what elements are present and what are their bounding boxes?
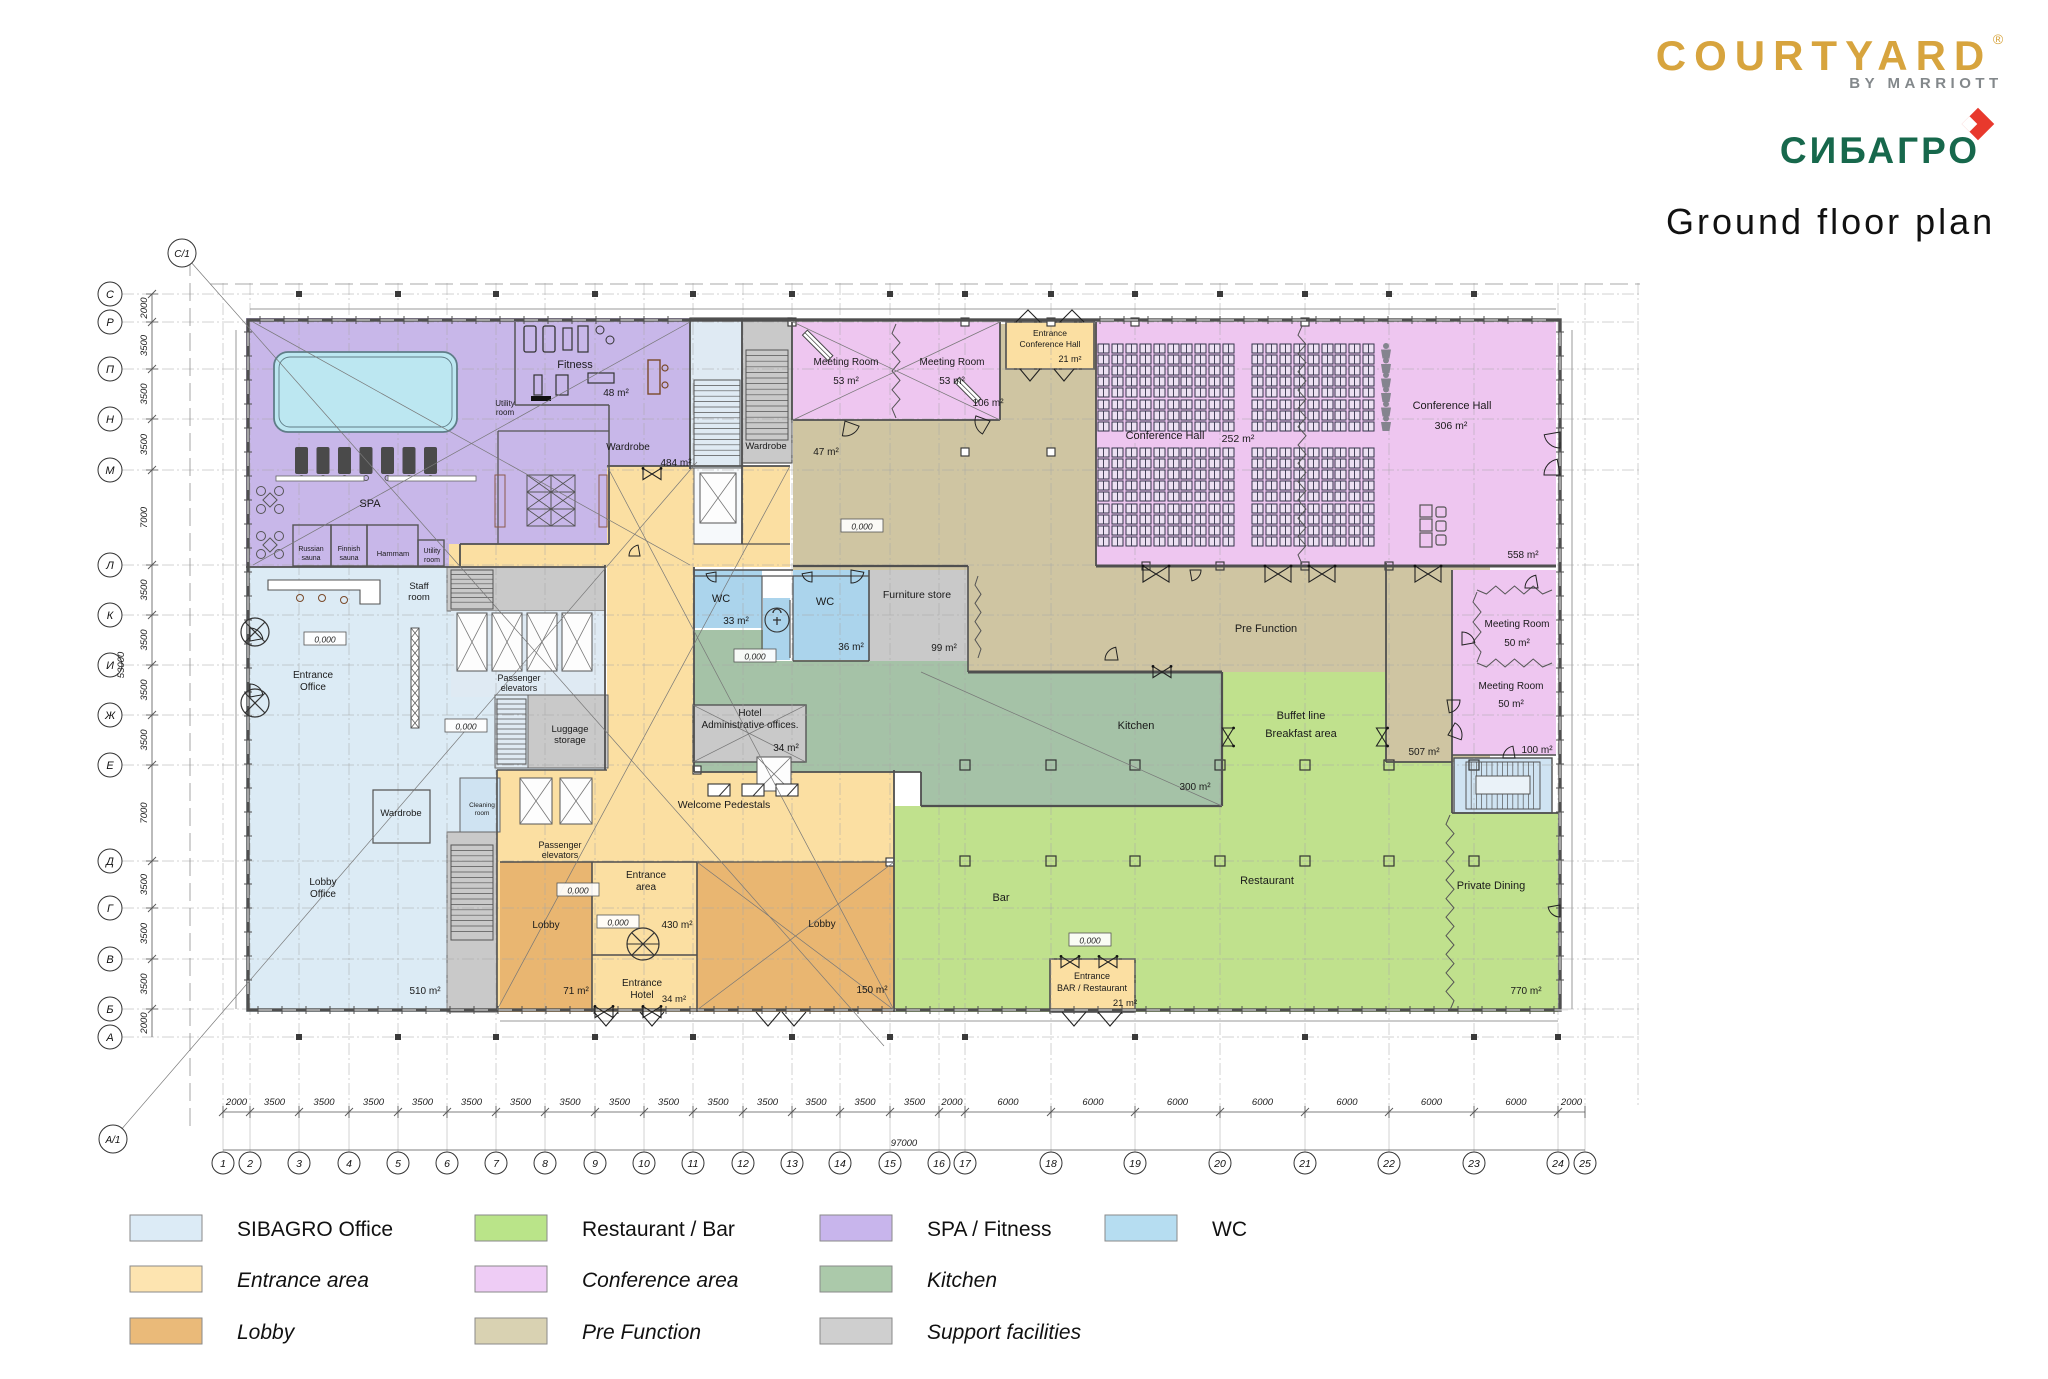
svg-text:Г: Г bbox=[107, 903, 114, 915]
svg-text:Л: Л bbox=[105, 560, 114, 572]
svg-text:6000: 6000 bbox=[1421, 1097, 1443, 1108]
svg-text:50 m²: 50 m² bbox=[1498, 699, 1524, 710]
svg-text:3500: 3500 bbox=[139, 629, 150, 651]
svg-text:3500: 3500 bbox=[510, 1097, 532, 1108]
svg-text:510 m²: 510 m² bbox=[409, 986, 441, 997]
svg-text:2000: 2000 bbox=[139, 297, 150, 320]
svg-text:0,000: 0,000 bbox=[607, 918, 629, 928]
svg-text:Entrance: Entrance bbox=[626, 870, 666, 881]
svg-text:BY MARRIOTT: BY MARRIOTT bbox=[1849, 75, 2002, 92]
svg-text:0,000: 0,000 bbox=[455, 722, 477, 732]
svg-text:Wardrobe: Wardrobe bbox=[380, 808, 421, 819]
svg-text:3500: 3500 bbox=[805, 1097, 827, 1108]
svg-text:Ж: Ж bbox=[104, 710, 116, 722]
svg-text:3500: 3500 bbox=[139, 334, 150, 356]
svg-text:Private Dining: Private Dining bbox=[1457, 880, 1525, 892]
svg-text:22: 22 bbox=[1382, 1158, 1395, 1170]
svg-text:Р: Р bbox=[106, 317, 114, 329]
svg-text:21 m²: 21 m² bbox=[1113, 998, 1137, 1009]
svg-text:21 m²: 21 m² bbox=[1058, 354, 1081, 364]
svg-text:3500: 3500 bbox=[658, 1097, 680, 1108]
svg-text:Kitchen: Kitchen bbox=[1118, 720, 1155, 732]
svg-text:Д: Д bbox=[104, 856, 114, 868]
svg-text:3500: 3500 bbox=[904, 1097, 926, 1108]
svg-text:Meeting Room: Meeting Room bbox=[1478, 681, 1543, 692]
svg-text:430 m²: 430 m² bbox=[661, 920, 693, 931]
svg-text:53 m²: 53 m² bbox=[833, 376, 859, 387]
svg-text:SPA / Fitness: SPA / Fitness bbox=[927, 1218, 1052, 1241]
svg-text:Hammam: Hammam bbox=[377, 549, 410, 558]
svg-text:Lobby: Lobby bbox=[237, 1321, 296, 1344]
svg-text:Fitness: Fitness bbox=[557, 359, 593, 371]
svg-text:Conference Hall: Conference Hall bbox=[1126, 430, 1205, 442]
svg-text:room: room bbox=[496, 408, 515, 417]
svg-text:36 m²: 36 m² bbox=[838, 642, 864, 653]
svg-text:WC: WC bbox=[1212, 1218, 1247, 1241]
svg-text:В: В bbox=[106, 954, 113, 966]
svg-text:СИБАГРО: СИБАГРО bbox=[1780, 130, 1980, 171]
svg-text:100 m²: 100 m² bbox=[1521, 745, 1553, 756]
svg-text:Luggage: Luggage bbox=[552, 724, 589, 735]
svg-text:Utility: Utility bbox=[495, 399, 515, 408]
svg-text:Office: Office bbox=[300, 682, 326, 693]
svg-text:0,000: 0,000 bbox=[851, 522, 873, 532]
svg-text:0,000: 0,000 bbox=[744, 652, 766, 662]
svg-text:Conference area: Conference area bbox=[582, 1269, 738, 1292]
svg-text:3500: 3500 bbox=[412, 1097, 434, 1108]
svg-text:3500: 3500 bbox=[757, 1097, 779, 1108]
svg-text:П: П bbox=[106, 364, 114, 376]
svg-text:1: 1 bbox=[220, 1158, 226, 1170]
svg-text:6000: 6000 bbox=[997, 1097, 1019, 1108]
svg-text:6000: 6000 bbox=[1167, 1097, 1189, 1108]
svg-text:Lobby: Lobby bbox=[309, 877, 336, 888]
svg-text:558 m²: 558 m² bbox=[1507, 550, 1539, 561]
svg-text:2: 2 bbox=[246, 1158, 253, 1170]
svg-text:Conference Hall: Conference Hall bbox=[1020, 339, 1081, 349]
svg-text:6000: 6000 bbox=[1336, 1097, 1358, 1108]
svg-text:Wardrobe: Wardrobe bbox=[606, 442, 650, 453]
svg-text:47 m²: 47 m² bbox=[813, 447, 839, 458]
svg-text:53000: 53000 bbox=[116, 651, 127, 678]
svg-text:Staff: Staff bbox=[409, 581, 429, 592]
svg-text:11: 11 bbox=[688, 1158, 699, 1170]
svg-text:3500: 3500 bbox=[139, 579, 150, 601]
svg-text:3500: 3500 bbox=[363, 1097, 385, 1108]
svg-text:106 m²: 106 m² bbox=[972, 398, 1004, 409]
svg-text:WC: WC bbox=[712, 593, 730, 605]
svg-text:Breakfast area: Breakfast area bbox=[1265, 728, 1337, 740]
svg-text:Passenger: Passenger bbox=[497, 673, 540, 683]
svg-text:16: 16 bbox=[933, 1158, 945, 1170]
svg-text:Б: Б bbox=[106, 1004, 113, 1016]
svg-text:Lobby: Lobby bbox=[808, 919, 835, 930]
svg-text:Passenger: Passenger bbox=[538, 840, 581, 850]
svg-text:Cleaning: Cleaning bbox=[469, 802, 495, 809]
svg-text:Hotel: Hotel bbox=[738, 708, 761, 719]
svg-text:3500: 3500 bbox=[264, 1097, 286, 1108]
svg-text:14: 14 bbox=[834, 1158, 846, 1170]
svg-text:8: 8 bbox=[542, 1158, 548, 1170]
svg-text:Kitchen: Kitchen bbox=[927, 1269, 997, 1292]
svg-text:storage: storage bbox=[554, 735, 586, 746]
svg-text:3500: 3500 bbox=[559, 1097, 581, 1108]
svg-text:3500: 3500 bbox=[461, 1097, 483, 1108]
svg-text:3500: 3500 bbox=[707, 1097, 729, 1108]
svg-text:6000: 6000 bbox=[1082, 1097, 1104, 1108]
svg-text:Е: Е bbox=[106, 760, 114, 772]
svg-text:18: 18 bbox=[1045, 1158, 1057, 1170]
svg-text:20: 20 bbox=[1213, 1158, 1226, 1170]
svg-text:19: 19 bbox=[1129, 1158, 1141, 1170]
svg-text:5: 5 bbox=[395, 1158, 401, 1170]
svg-text:А: А bbox=[105, 1032, 113, 1044]
svg-text:34 m²: 34 m² bbox=[773, 743, 799, 754]
svg-text:Welcome Pedestals: Welcome Pedestals bbox=[678, 799, 771, 811]
svg-text:Pre Function: Pre Function bbox=[1235, 623, 1297, 635]
svg-text:71 m²: 71 m² bbox=[563, 986, 589, 997]
svg-text:6000: 6000 bbox=[1505, 1097, 1527, 1108]
svg-text:room: room bbox=[408, 592, 430, 603]
svg-text:2000: 2000 bbox=[1560, 1097, 1583, 1108]
svg-text:6000: 6000 bbox=[1252, 1097, 1274, 1108]
svg-text:М: М bbox=[105, 465, 115, 477]
svg-text:3500: 3500 bbox=[139, 383, 150, 405]
svg-text:А/1: А/1 bbox=[104, 1135, 120, 1146]
svg-text:17: 17 bbox=[959, 1158, 972, 1170]
svg-text:6: 6 bbox=[444, 1158, 450, 1170]
svg-text:150 m²: 150 m² bbox=[856, 985, 888, 996]
svg-text:Buffet line: Buffet line bbox=[1277, 710, 1326, 722]
svg-text:Wardrobe: Wardrobe bbox=[745, 441, 786, 452]
svg-text:Russian: Russian bbox=[298, 546, 323, 553]
svg-text:12: 12 bbox=[737, 1158, 749, 1170]
svg-text:3: 3 bbox=[296, 1158, 302, 1170]
svg-text:sauna: sauna bbox=[339, 555, 358, 562]
svg-text:48 m²: 48 m² bbox=[603, 388, 629, 399]
svg-text:Administrative offices.: Administrative offices. bbox=[701, 720, 798, 731]
svg-text:С/1: С/1 bbox=[174, 249, 190, 260]
svg-text:К: К bbox=[107, 610, 114, 622]
svg-text:elevators: elevators bbox=[542, 850, 579, 860]
svg-text:3500: 3500 bbox=[139, 433, 150, 455]
svg-text:0,000: 0,000 bbox=[1079, 936, 1101, 946]
svg-text:97000: 97000 bbox=[891, 1138, 918, 1149]
svg-text:21: 21 bbox=[1298, 1158, 1311, 1170]
svg-text:15: 15 bbox=[884, 1158, 896, 1170]
svg-text:306 m²: 306 m² bbox=[1435, 420, 1468, 432]
svg-text:53 m²: 53 m² bbox=[939, 376, 965, 387]
svg-text:4: 4 bbox=[346, 1158, 352, 1170]
svg-text:33 m²: 33 m² bbox=[723, 616, 749, 627]
svg-text:elevators: elevators bbox=[501, 683, 538, 693]
svg-text:3500: 3500 bbox=[313, 1097, 335, 1108]
svg-text:room: room bbox=[475, 810, 490, 817]
svg-text:3500: 3500 bbox=[854, 1097, 876, 1108]
svg-text:3500: 3500 bbox=[139, 922, 150, 944]
svg-text:Entrance: Entrance bbox=[1033, 328, 1067, 338]
svg-text:COURTYARD: COURTYARD bbox=[1656, 32, 1992, 79]
svg-text:Meeting Room: Meeting Room bbox=[813, 357, 878, 368]
svg-text:Conference Hall: Conference Hall bbox=[1413, 400, 1492, 412]
svg-text:0,000: 0,000 bbox=[567, 886, 589, 896]
svg-text:10: 10 bbox=[638, 1158, 650, 1170]
svg-text:25: 25 bbox=[1578, 1158, 1591, 1170]
svg-text:room: room bbox=[424, 557, 440, 564]
svg-text:Pre Function: Pre Function bbox=[582, 1321, 701, 1344]
svg-text:13: 13 bbox=[786, 1158, 798, 1170]
svg-text:3500: 3500 bbox=[139, 729, 150, 751]
svg-text:Restaurant: Restaurant bbox=[1240, 875, 1294, 887]
svg-text:9: 9 bbox=[592, 1158, 598, 1170]
svg-text:Н: Н bbox=[106, 414, 114, 426]
svg-text:Meeting Room: Meeting Room bbox=[919, 357, 984, 368]
svg-text:Entrance: Entrance bbox=[1074, 971, 1110, 981]
svg-text:Entrance: Entrance bbox=[293, 670, 333, 681]
svg-text:Ground floor plan: Ground floor plan bbox=[1666, 201, 1995, 242]
svg-text:0,000: 0,000 bbox=[314, 635, 336, 645]
svg-text:99 m²: 99 m² bbox=[931, 643, 957, 654]
svg-text:2000: 2000 bbox=[139, 1012, 150, 1035]
svg-text:®: ® bbox=[1993, 31, 2004, 47]
svg-text:484 m²: 484 m² bbox=[660, 458, 692, 469]
svg-text:Finnish: Finnish bbox=[338, 546, 361, 553]
svg-text:Support facilities: Support facilities bbox=[927, 1321, 1082, 1344]
svg-text:Bar: Bar bbox=[992, 892, 1009, 904]
svg-text:50 m²: 50 m² bbox=[1504, 638, 1530, 649]
svg-text:770 m²: 770 m² bbox=[1510, 986, 1542, 997]
svg-text:Entrance: Entrance bbox=[622, 978, 662, 989]
svg-text:BAR / Restaurant: BAR / Restaurant bbox=[1057, 983, 1128, 993]
svg-text:Utility: Utility bbox=[423, 548, 441, 555]
svg-text:С: С bbox=[106, 289, 114, 301]
svg-text:3500: 3500 bbox=[139, 679, 150, 701]
svg-text:WC: WC bbox=[816, 596, 834, 608]
svg-text:Office: Office bbox=[310, 889, 336, 900]
svg-text:24: 24 bbox=[1551, 1158, 1564, 1170]
svg-text:Restaurant / Bar: Restaurant / Bar bbox=[582, 1218, 735, 1241]
svg-text:252 m²: 252 m² bbox=[1222, 433, 1255, 445]
svg-text:Furniture store: Furniture store bbox=[883, 589, 951, 601]
svg-text:300 m²: 300 m² bbox=[1179, 782, 1211, 793]
svg-text:3500: 3500 bbox=[139, 973, 150, 995]
svg-text:Entrance area: Entrance area bbox=[237, 1269, 369, 1292]
svg-text:3500: 3500 bbox=[609, 1097, 631, 1108]
svg-text:Hotel: Hotel bbox=[630, 990, 653, 1001]
svg-text:SPA: SPA bbox=[359, 498, 381, 510]
svg-text:Meeting Room: Meeting Room bbox=[1484, 619, 1549, 630]
svg-text:3500: 3500 bbox=[139, 873, 150, 895]
svg-text:2000: 2000 bbox=[225, 1097, 248, 1108]
svg-text:SIBAGRO Office: SIBAGRO Office bbox=[237, 1218, 393, 1241]
svg-text:7000: 7000 bbox=[139, 802, 150, 824]
svg-text:23: 23 bbox=[1467, 1158, 1480, 1170]
svg-text:И: И bbox=[106, 660, 114, 672]
svg-text:2000: 2000 bbox=[940, 1097, 963, 1108]
svg-text:sauna: sauna bbox=[301, 555, 320, 562]
svg-text:34 m²: 34 m² bbox=[662, 994, 686, 1005]
svg-text:507 m²: 507 m² bbox=[1408, 747, 1440, 758]
svg-text:area: area bbox=[636, 882, 656, 893]
svg-text:7000: 7000 bbox=[139, 506, 150, 528]
svg-text:Lobby: Lobby bbox=[532, 920, 559, 931]
